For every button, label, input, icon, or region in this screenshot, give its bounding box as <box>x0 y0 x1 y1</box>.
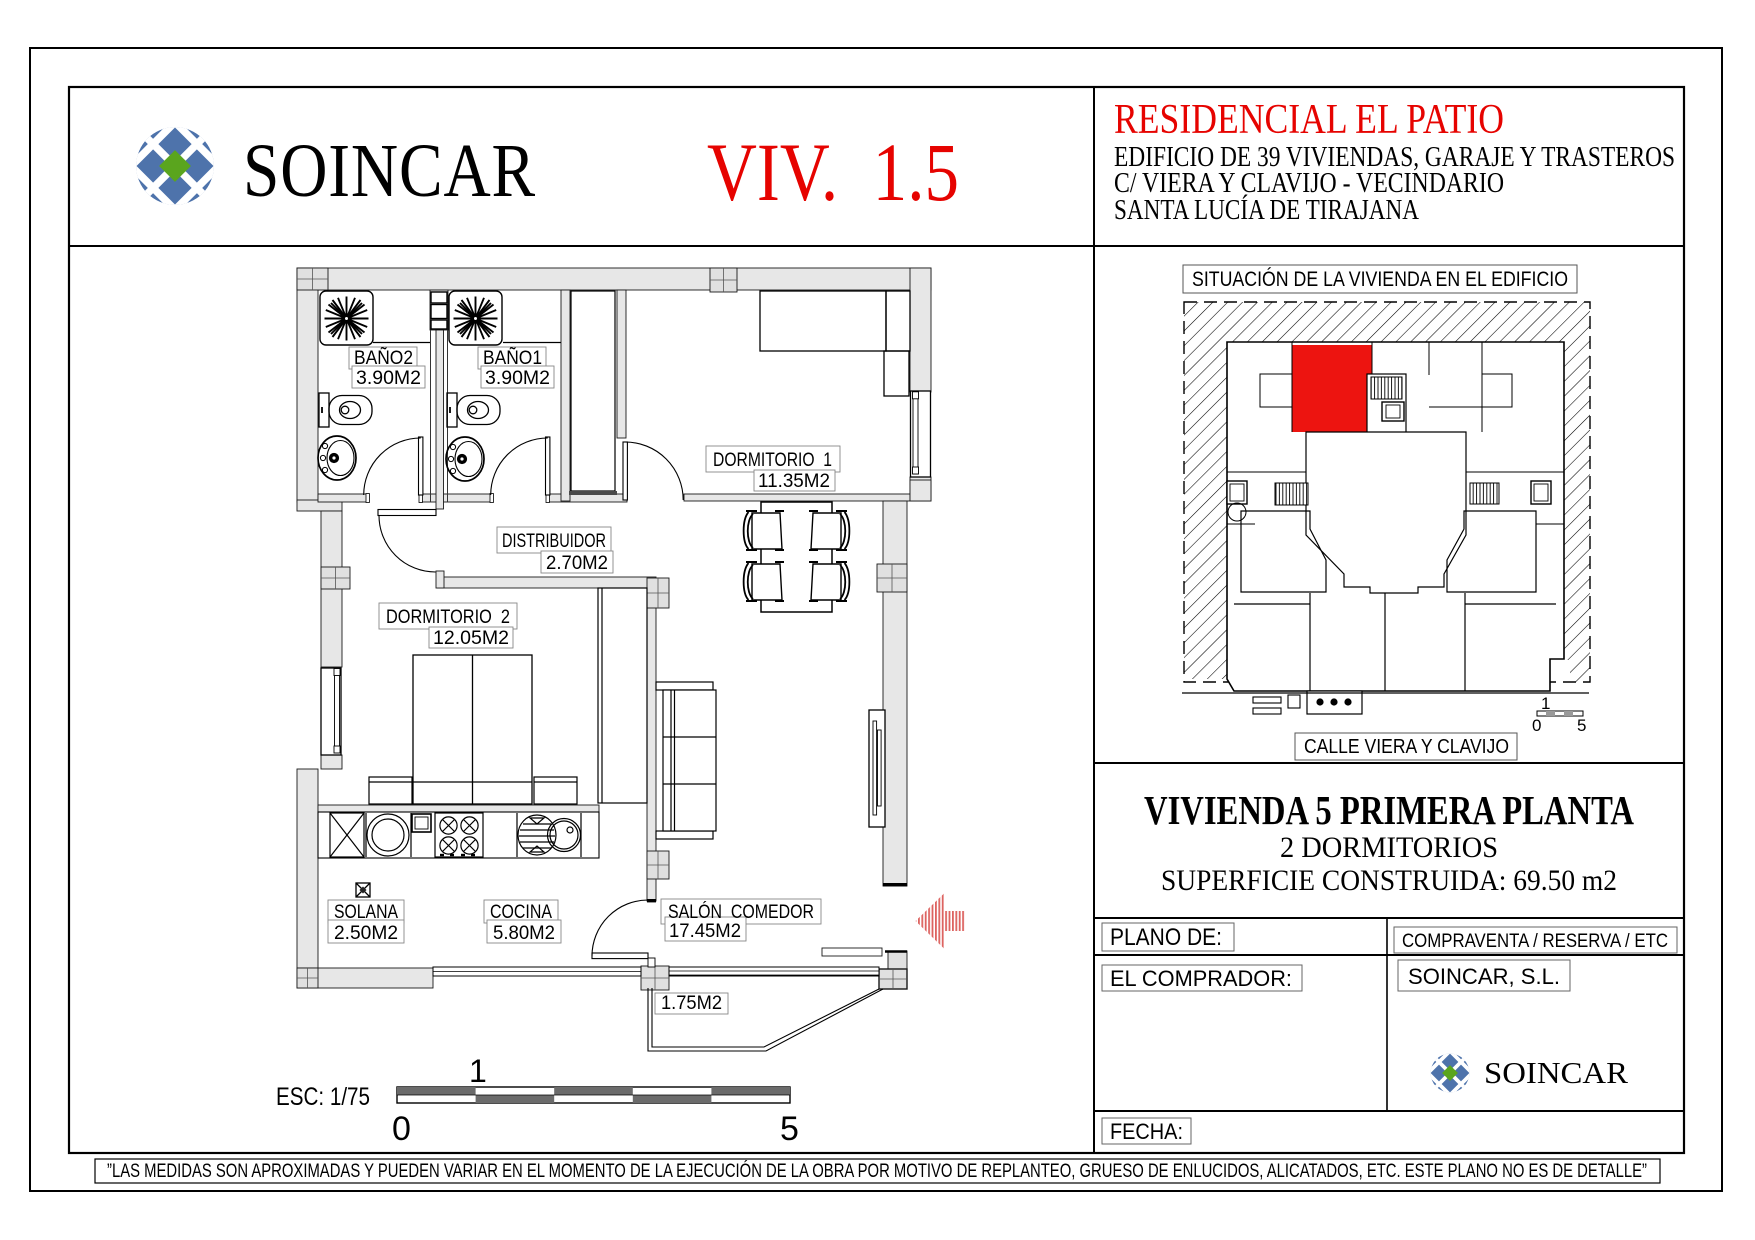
svg-text:1: 1 <box>469 1053 487 1089</box>
svg-text:SALÓN COMEDOR: SALÓN COMEDOR <box>668 901 814 923</box>
svg-text:2.50M2: 2.50M2 <box>334 923 398 944</box>
svg-text:VIVIENDA 5 PRIMERA PLANTA: VIVIENDA 5 PRIMERA PLANTA <box>1144 787 1634 833</box>
svg-text:12.05M2: 12.05M2 <box>433 628 509 649</box>
svg-text:SUPERFICIE CONSTRUIDA: 69.50 m: SUPERFICIE CONSTRUIDA: 69.50 m2 <box>1161 864 1617 897</box>
svg-text:DISTRIBUIDOR: DISTRIBUIDOR <box>502 531 606 552</box>
svg-text:1: 1 <box>1541 694 1550 713</box>
svg-text:SOINCAR: SOINCAR <box>1484 1055 1628 1090</box>
svg-text:DORMITORIO 2: DORMITORIO 2 <box>386 607 510 628</box>
svg-text:3.90M2: 3.90M2 <box>485 368 550 389</box>
svg-text:VIV. 1.5: VIV. 1.5 <box>707 126 959 218</box>
svg-text:SOINCAR: SOINCAR <box>243 129 536 213</box>
svg-text:”LAS MEDIDAS SON APROXIMADAS Y: ”LAS MEDIDAS SON APROXIMADAS Y PUEDEN VA… <box>107 1160 1647 1182</box>
svg-text:1.75M2: 1.75M2 <box>661 993 722 1014</box>
svg-text:3.90M2: 3.90M2 <box>356 368 421 389</box>
svg-text:EL COMPRADOR:: EL COMPRADOR: <box>1110 966 1292 991</box>
svg-text:5: 5 <box>780 1110 799 1148</box>
svg-text:COMPRAVENTA / RESERVA / ETC: COMPRAVENTA / RESERVA / ETC <box>1402 931 1668 952</box>
svg-text:FECHA:: FECHA: <box>1110 1119 1183 1144</box>
svg-text:2.70M2: 2.70M2 <box>546 553 608 574</box>
svg-text:0: 0 <box>392 1110 411 1148</box>
svg-text:11.35M2: 11.35M2 <box>758 471 830 492</box>
svg-text:17.45M2: 17.45M2 <box>669 921 741 942</box>
svg-text:0: 0 <box>1532 716 1541 735</box>
svg-text:SANTA LUCÍA DE TIRAJANA: SANTA LUCÍA DE TIRAJANA <box>1114 195 1420 226</box>
svg-text:BAÑO2: BAÑO2 <box>354 347 413 369</box>
svg-text:COCINA: COCINA <box>490 902 552 923</box>
svg-text:SOLANA: SOLANA <box>334 902 398 923</box>
svg-text:SOINCAR, S.L.: SOINCAR, S.L. <box>1408 964 1560 989</box>
svg-text:CALLE VIERA Y CLAVIJO: CALLE VIERA Y CLAVIJO <box>1304 736 1509 758</box>
svg-text:DORMITORIO 1: DORMITORIO 1 <box>713 450 832 471</box>
svg-text:BAÑO1: BAÑO1 <box>483 347 542 369</box>
svg-text:RESIDENCIAL EL PATIO: RESIDENCIAL EL PATIO <box>1114 97 1504 143</box>
svg-text:ESC: 1/75: ESC: 1/75 <box>276 1083 370 1111</box>
svg-text:SITUACIÓN DE LA VIVIENDA EN EL: SITUACIÓN DE LA VIVIENDA EN EL EDIFICIO <box>1192 268 1568 291</box>
svg-text:5.80M2: 5.80M2 <box>493 923 555 944</box>
svg-text:2 DORMITORIOS: 2 DORMITORIOS <box>1280 831 1498 864</box>
svg-text:PLANO DE:: PLANO DE: <box>1110 924 1222 951</box>
svg-text:5: 5 <box>1577 716 1586 735</box>
